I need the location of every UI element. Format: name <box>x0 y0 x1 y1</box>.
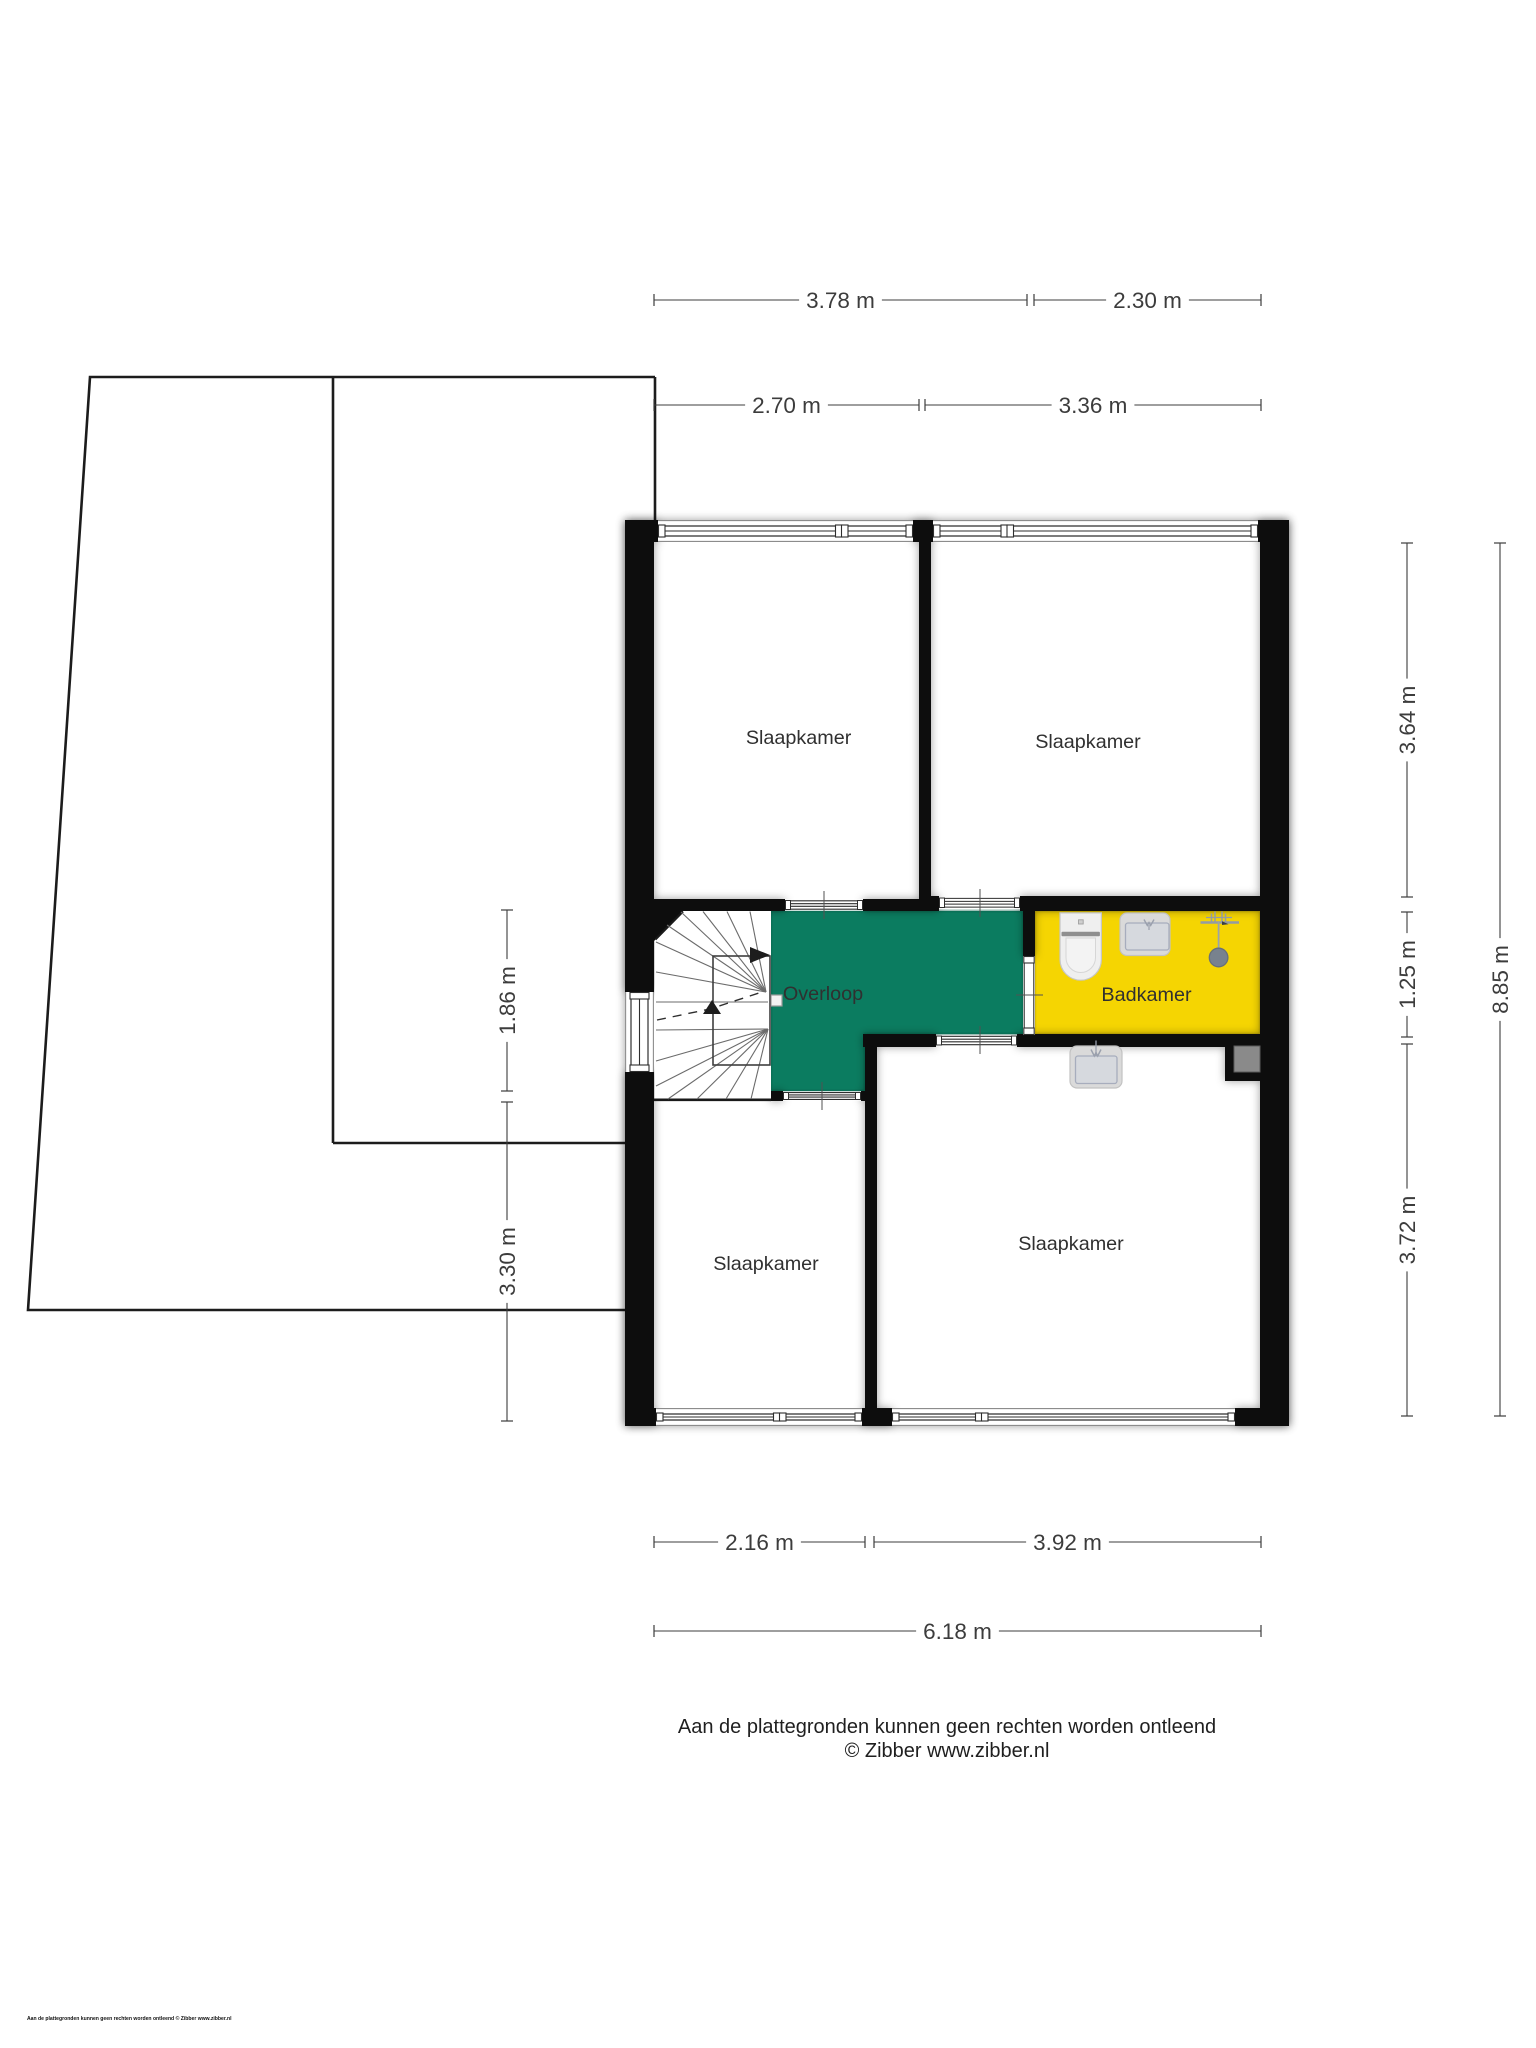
svg-text:3.64 m: 3.64 m <box>1395 686 1420 755</box>
svg-text:1.25 m: 1.25 m <box>1395 940 1420 1009</box>
svg-text:1.86 m: 1.86 m <box>495 966 520 1035</box>
svg-text:2.16 m: 2.16 m <box>725 1530 794 1555</box>
svg-text:3.78 m: 3.78 m <box>806 288 875 313</box>
svg-text:Badkamer: Badkamer <box>1101 984 1192 1006</box>
svg-text:Slaapkamer: Slaapkamer <box>1035 731 1141 753</box>
svg-text:3.72 m: 3.72 m <box>1395 1196 1420 1265</box>
svg-text:3.30 m: 3.30 m <box>495 1227 520 1296</box>
svg-text:Overloop: Overloop <box>783 983 863 1005</box>
svg-text:Aan de plattegronden kunnen ge: Aan de plattegronden kunnen geen rechten… <box>27 2015 232 2022</box>
svg-text:2.30 m: 2.30 m <box>1113 288 1182 313</box>
svg-text:Slaapkamer: Slaapkamer <box>1018 1233 1124 1255</box>
svg-text:6.18 m: 6.18 m <box>923 1619 992 1644</box>
svg-text:Slaapkamer: Slaapkamer <box>713 1253 819 1275</box>
svg-text:Slaapkamer: Slaapkamer <box>746 727 852 749</box>
svg-text:Aan de plattegronden kunnen ge: Aan de plattegronden kunnen geen rechten… <box>678 1716 1216 1738</box>
svg-text:8.85 m: 8.85 m <box>1488 945 1513 1014</box>
svg-text:2.70 m: 2.70 m <box>752 393 821 418</box>
svg-text:3.36 m: 3.36 m <box>1059 393 1128 418</box>
svg-text:3.92 m: 3.92 m <box>1033 1530 1102 1555</box>
svg-text:© Zibber www.zibber.nl: © Zibber www.zibber.nl <box>845 1740 1050 1762</box>
